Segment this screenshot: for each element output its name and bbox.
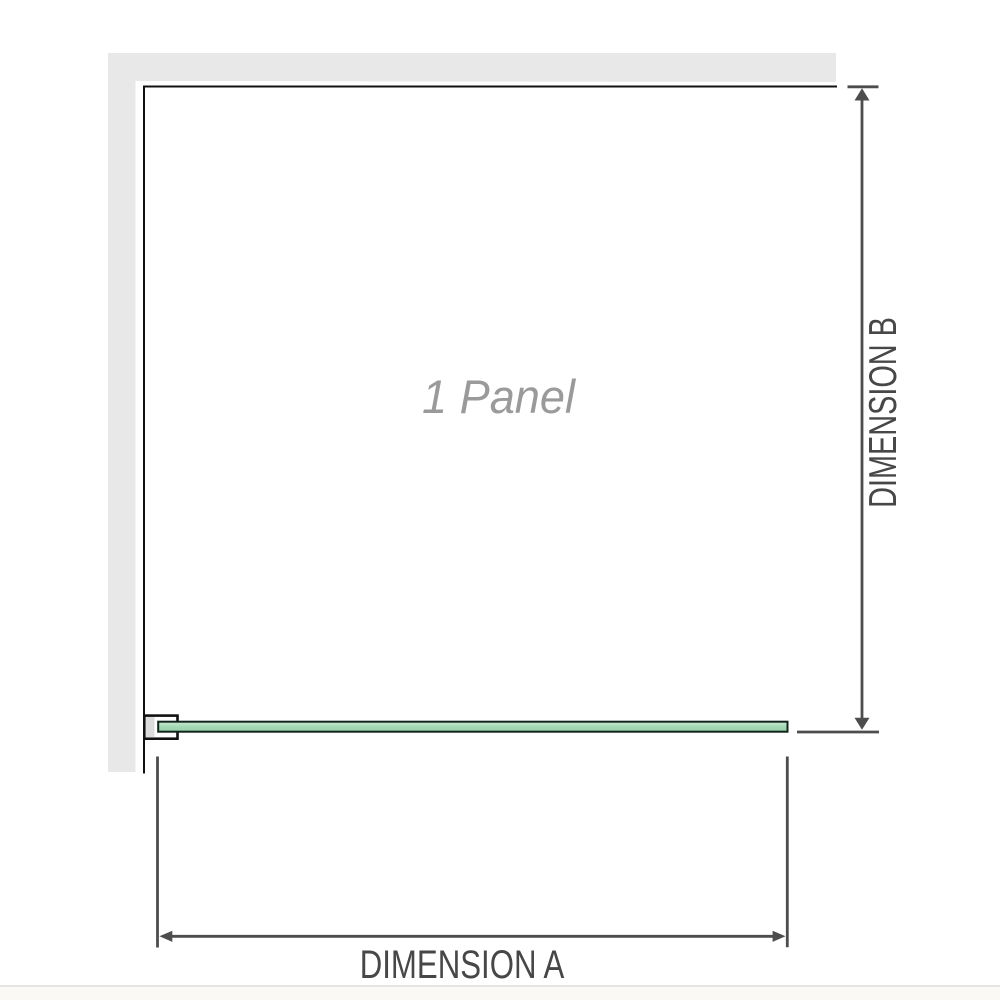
svg-text:DIMENSION A: DIMENSION A [360, 942, 565, 987]
svg-text:1 Panel: 1 Panel [422, 370, 577, 423]
svg-text:DIMENSION B: DIMENSION B [862, 317, 905, 508]
